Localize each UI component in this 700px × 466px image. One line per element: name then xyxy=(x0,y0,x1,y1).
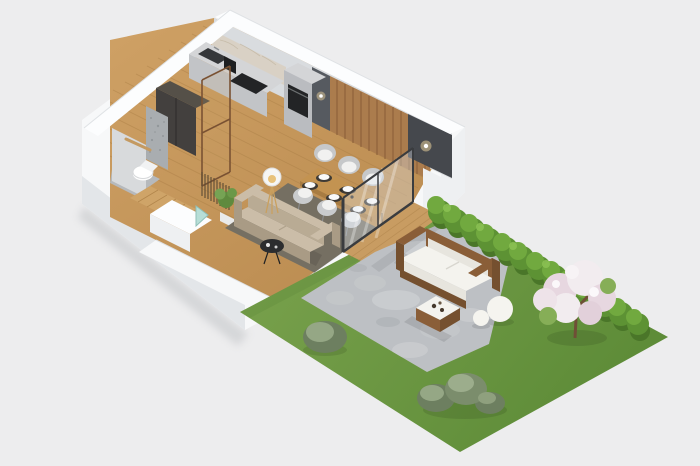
wall-sconce-bulb xyxy=(424,144,428,148)
sphere-lamp-large xyxy=(487,296,513,322)
chair xyxy=(338,156,360,174)
sphere-lamp-small xyxy=(473,310,489,326)
sofa-armrest-right-face xyxy=(332,222,340,248)
wall-sconce2-bulb xyxy=(319,94,323,98)
glass-partition xyxy=(202,66,230,186)
outdoor-armrest-right-face xyxy=(492,258,500,292)
sofa-armrest-left-face xyxy=(234,198,242,224)
bathroom-stone-wall xyxy=(146,106,168,170)
chair xyxy=(314,144,336,162)
floorplan-stage xyxy=(0,0,700,466)
outdoor-armrest-left-face xyxy=(396,241,404,273)
floorplan-render xyxy=(0,0,700,466)
